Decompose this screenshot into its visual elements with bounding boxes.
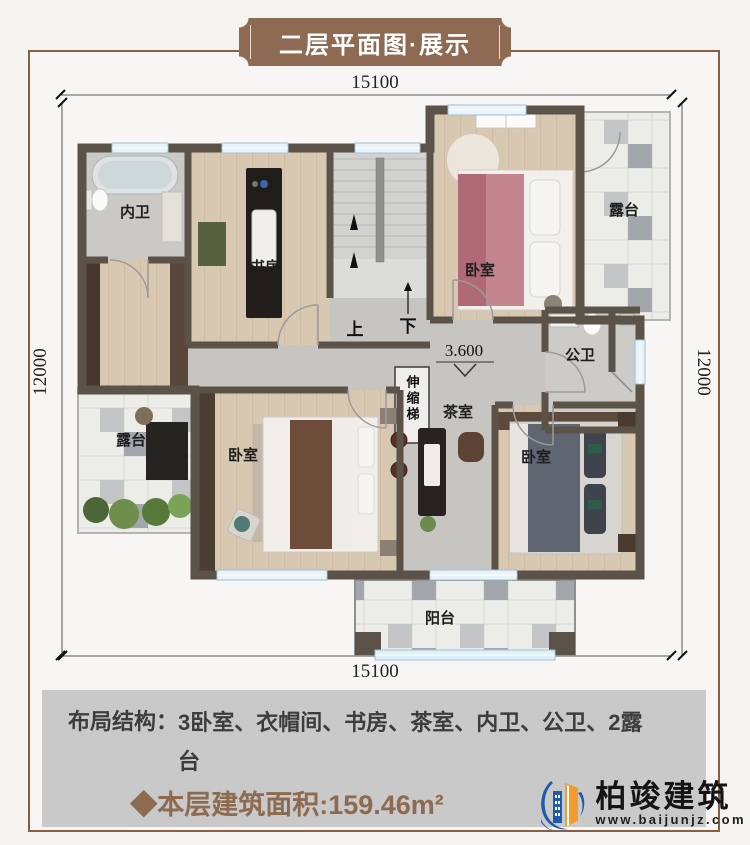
layout-structure-line: 布局结构： 3卧室、衣帽间、书房、茶室、内卫、公卫、2露台 <box>68 704 696 781</box>
dim-top: 15100 <box>351 72 399 93</box>
stair-up-label: 上 <box>347 320 364 339</box>
stair-down-label: 下 <box>400 317 417 336</box>
label-bedroom-right: 卧室 <box>521 448 551 466</box>
title-banner: 二层平面图·展示 <box>239 18 511 66</box>
logo-company-name: 柏竣建筑 <box>595 781 731 814</box>
label-tea-room: 茶室 <box>443 403 473 421</box>
terrace-left <box>78 388 192 533</box>
svg-text:伸缩梯: 伸缩梯 <box>405 374 421 423</box>
label-ensuite-bath: 内卫 <box>120 203 150 221</box>
label-bedroom-left: 卧室 <box>228 446 258 464</box>
company-logo: 柏竣建筑 www.baijunjz.com <box>533 775 746 833</box>
logo-website: www.baijunjz.com <box>595 812 746 827</box>
dim-right: 12000 <box>693 348 714 396</box>
label-terrace-left: 露台 <box>116 431 146 449</box>
logo-mark-icon <box>533 775 591 833</box>
label-balcony: 阳台 <box>425 609 455 627</box>
page-title: 二层平面图·展示 <box>279 25 471 60</box>
label-bedroom-top: 卧室 <box>465 261 495 279</box>
svg-text:3.600: 3.600 <box>445 341 483 360</box>
label-terrace-right: 露台 <box>609 201 639 219</box>
page: 二层平面图·展示 <box>0 0 750 845</box>
dim-bottom: 15100 <box>351 661 399 682</box>
floorplan-drawing: 15100 15100 12000 12000 <box>28 72 722 690</box>
staircase <box>330 148 430 314</box>
dim-left: 12000 <box>30 348 51 396</box>
label-study: 书房 <box>250 258 280 276</box>
balcony <box>355 580 575 655</box>
layout-structure-value: 3卧室、衣帽间、书房、茶室、内卫、公卫、2露台 <box>178 704 648 781</box>
layout-structure-label: 布局结构： <box>68 704 178 781</box>
label-public-bath: 公卫 <box>565 347 595 364</box>
